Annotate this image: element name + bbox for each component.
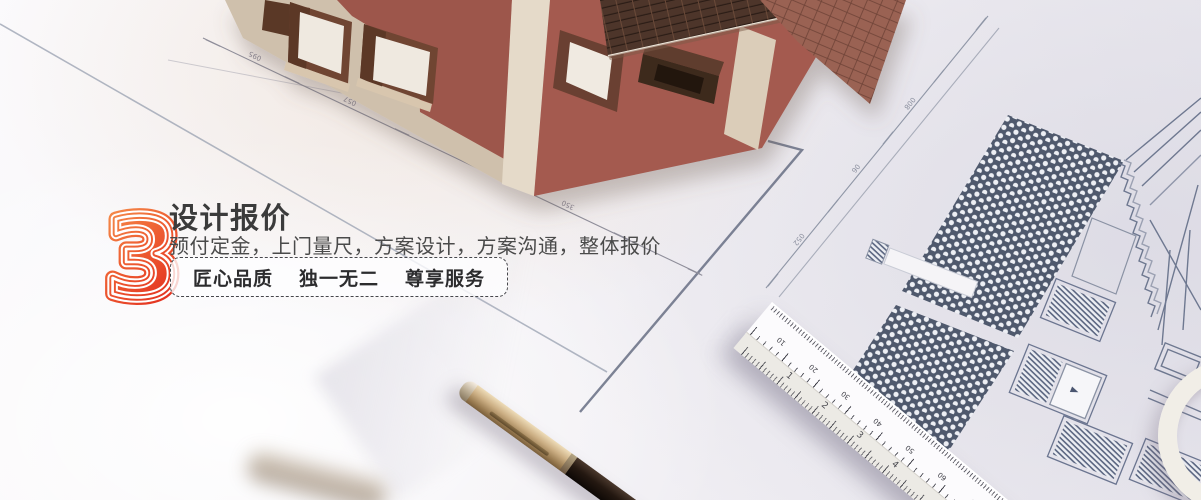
ruler-number: 2 [819,400,830,411]
banner-subtitle: 预付定金，上门量尺，方案设计，方案沟通，整体报价 [169,230,661,259]
ruler-number: 4 [889,459,900,470]
house-model [225,0,906,196]
ruler-number: 1 [784,371,795,382]
window-symbol [1047,416,1132,485]
badge-item: 匠心品质 [193,264,273,291]
window-symbol [1009,344,1106,424]
hero-banner: 095 057 098 350 052 06 008 (A6) [0,0,1201,500]
badge-item: 尊享服务 [405,264,485,291]
gable-drawing [1118,98,1201,420]
quality-badge: 匠心品质 独一无二 尊享服务 [170,257,508,297]
ruler-number: 3 [854,430,865,441]
dimension-label: 052 [791,232,806,247]
window-symbol [1040,279,1115,342]
dimension-label: 008 [902,96,917,111]
badge-item: 独一无二 [299,264,379,291]
